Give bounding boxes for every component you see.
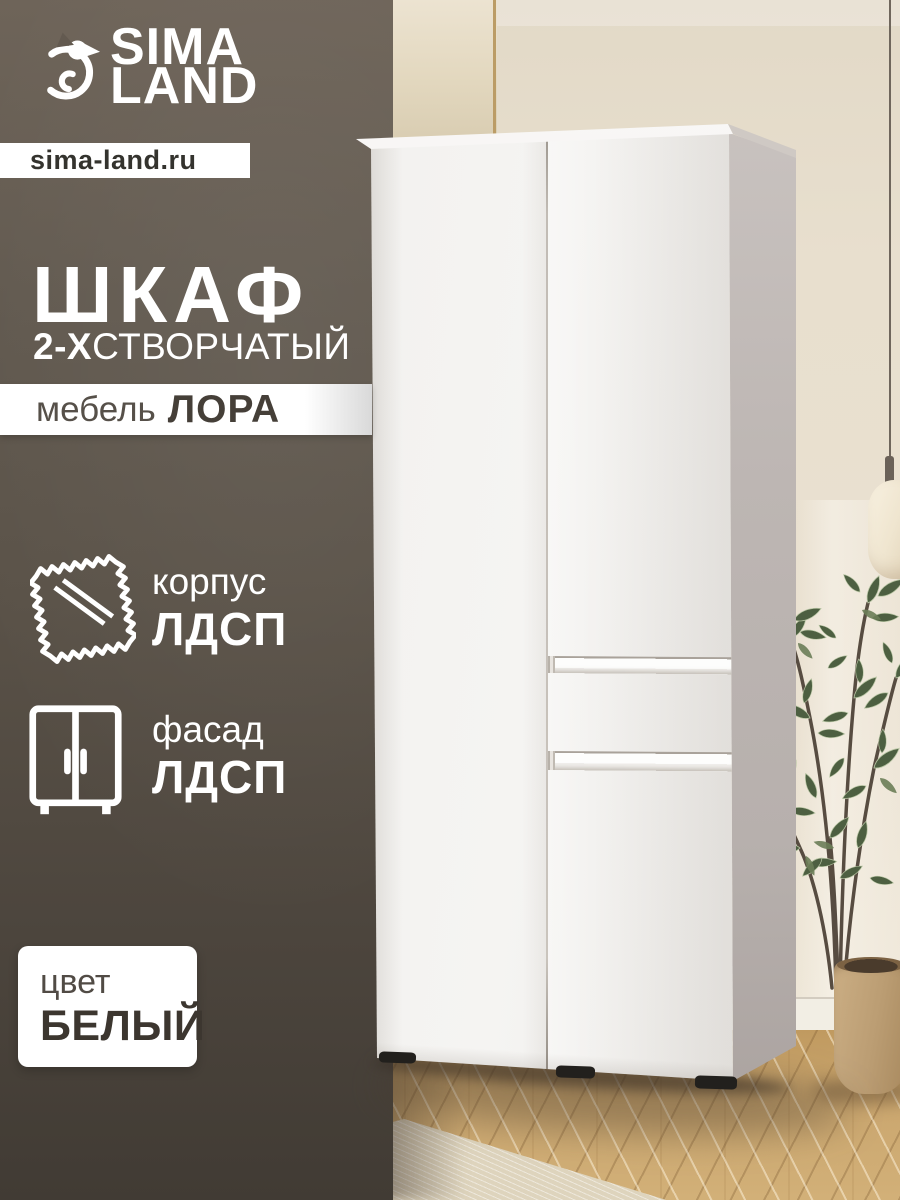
wardrobe-handle-groove-bottom — [548, 751, 732, 771]
plant-pot — [834, 960, 900, 1094]
color-card: цвет БЕЛЫЙ — [18, 946, 197, 1067]
sima-land-logo: SIMA LAND — [110, 28, 258, 106]
feature-label: корпус — [152, 560, 287, 604]
feature-fasad: фасад ЛДСП — [152, 708, 287, 802]
website-strip: sima-land.ru — [0, 143, 250, 178]
plant-pot-rim — [837, 957, 900, 973]
wardrobe-foot — [556, 1065, 595, 1078]
dolphin-icon — [34, 26, 100, 114]
color-label: цвет — [40, 962, 197, 1002]
wardrobe-foot — [379, 1051, 416, 1063]
feature-value: ЛДСП — [152, 752, 287, 802]
wardrobe-door-gap — [546, 140, 548, 1069]
groove-bracket — [548, 656, 556, 673]
wardrobe-handle-groove-top — [548, 656, 732, 674]
wardrobe-right-door — [547, 133, 733, 1081]
product-title: ШКАФ — [32, 255, 309, 335]
fabric-swatch-icon — [30, 552, 136, 666]
product-subtitle: 2-ХСТВОРЧАТЫЙ — [33, 328, 350, 365]
feature-value: ЛДСП — [152, 604, 287, 654]
groove-bracket — [548, 751, 556, 770]
feature-korpus: корпус ЛДСП — [152, 560, 287, 654]
wardrobe-icon — [28, 702, 123, 820]
feature-label: фасад — [152, 708, 287, 752]
pendant-lamp-cable — [889, 0, 891, 462]
color-value: БЕЛЫЙ — [40, 1002, 197, 1050]
series-strip: мебель ЛОРА — [0, 384, 372, 435]
series-name: ЛОРА — [168, 388, 280, 432]
subtitle-rest: СТВОРЧАТЫЙ — [92, 326, 350, 367]
wardrobe-left-door — [371, 133, 547, 1081]
wardrobe-foot — [695, 1075, 737, 1089]
subtitle-prefix: 2-Х — [33, 326, 92, 367]
wall-gold-trim — [493, 0, 496, 139]
logo-line2: LAND — [110, 67, 258, 106]
series-label: мебель — [36, 390, 156, 430]
website-url: sima-land.ru — [0, 145, 197, 176]
wall-panel-strip — [393, 0, 497, 141]
product-card: SIMA LAND sima-land.ru ШКАФ 2-ХСТВОРЧАТЫ… — [0, 0, 900, 1200]
